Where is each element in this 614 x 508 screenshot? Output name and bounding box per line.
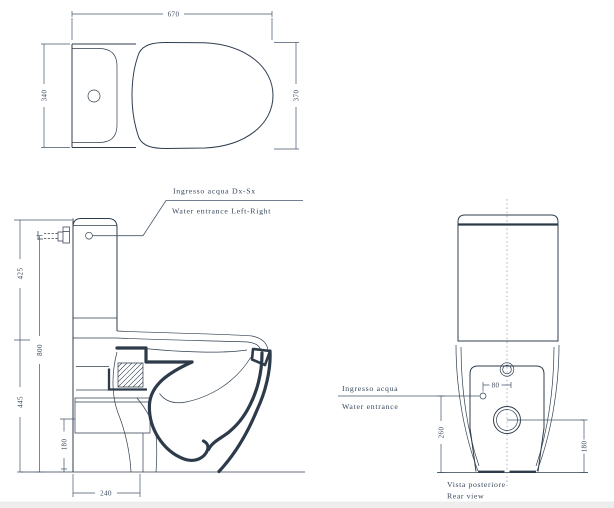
bowl-inner-section xyxy=(149,362,208,460)
seat-line xyxy=(140,348,247,352)
rear-view-caption-italian: Vista posteriore xyxy=(447,480,506,489)
drawing-canvas: 670 340 370 xyxy=(0,0,614,508)
plan-tank-outline xyxy=(72,44,136,148)
dim-340-label: 340 xyxy=(40,90,48,102)
flush-button xyxy=(88,90,100,102)
dim-180-side-label: 180 xyxy=(60,439,68,451)
dim-260: 260 xyxy=(437,396,445,473)
rear-inlet-note-english: Water entrance xyxy=(342,402,399,411)
bowl-shell-inner xyxy=(209,353,263,450)
dim-180-rear: 180 xyxy=(580,420,588,473)
overflow-grommet-outer xyxy=(500,363,514,377)
dim-240-label: 240 xyxy=(100,490,112,498)
bowl-deck-section xyxy=(117,348,192,362)
side-view: Ingresso acqua Dx-Sx Water entrance Left… xyxy=(14,187,305,498)
dim-800-label: 800 xyxy=(36,344,44,356)
dim-240: 240 xyxy=(73,474,140,498)
dim-180-rear-label: 180 xyxy=(580,441,588,453)
flush-channel-section xyxy=(76,363,147,390)
rear-cistern xyxy=(458,215,558,341)
rear-inlet-note-italian: Ingresso acqua xyxy=(342,384,398,393)
inlet-note-italian: Ingresso acqua Dx-Sx xyxy=(173,187,256,196)
dim-260-label: 260 xyxy=(437,427,445,439)
outlet-box xyxy=(75,398,150,433)
pedestal-front xyxy=(113,352,131,472)
plan-seat-lid xyxy=(132,43,273,149)
dim-80: 80 xyxy=(483,381,511,391)
dim-445-label: 445 xyxy=(16,396,24,408)
hatch-lines xyxy=(118,363,143,387)
dim-670: 670 xyxy=(72,10,272,40)
top-view: 670 340 370 xyxy=(40,10,300,149)
dim-80-label: 80 xyxy=(492,381,500,389)
inlet-note-english: Water entrance Left-Right xyxy=(172,207,271,216)
rear-view-caption-english: Rear view xyxy=(447,492,484,501)
supply-valve-symbol xyxy=(38,227,70,243)
rear-view: 80 260 180 Ingresso acqua Water entrance… xyxy=(338,199,588,501)
dim-670-label: 670 xyxy=(168,10,180,18)
flush-pipe-lines xyxy=(76,367,109,391)
dim-370-label: 370 xyxy=(292,90,300,102)
pedestal-rear xyxy=(137,398,157,472)
dim-800: 800 xyxy=(36,236,44,472)
plan-tank-surface xyxy=(72,49,117,143)
water-inlet-hole xyxy=(86,232,93,239)
valve-pipe-dashed xyxy=(44,234,58,239)
page-edge xyxy=(0,502,614,508)
dim-340: 340 xyxy=(40,44,70,148)
bowl-inner-surface xyxy=(160,357,252,403)
rear-water-inlet xyxy=(480,393,486,399)
dim-425-label: 425 xyxy=(16,268,24,280)
valve-body xyxy=(58,227,70,243)
drawing-page: 670 340 370 xyxy=(0,0,614,508)
cistern-seams xyxy=(73,226,117,339)
dim-370: 370 xyxy=(274,43,300,150)
